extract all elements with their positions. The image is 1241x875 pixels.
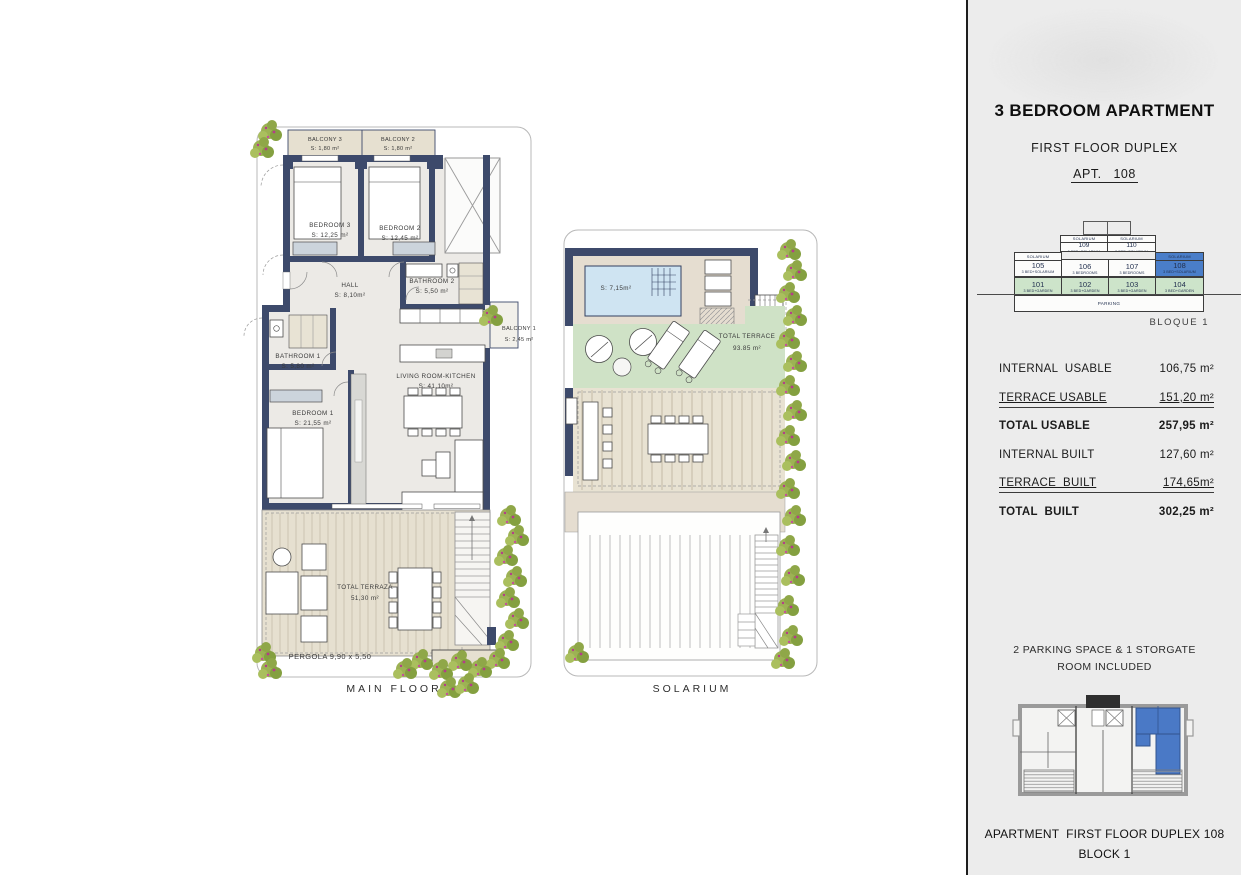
parking-note: 2 PARKING SPACE & 1 STORGATE ROOM INCLUD…: [968, 642, 1241, 676]
unit-cell-103: 103 3 BED+GARDEN: [1108, 277, 1156, 295]
area-row-terrace-usable: TERRACE USABLE 151,20 m²: [999, 392, 1214, 421]
pool: S: 7,15m²: [585, 266, 681, 316]
bedroom2-area: S: 12,45 m²: [382, 235, 419, 242]
roof-connector: [1083, 221, 1131, 235]
mini-building-plan: [1008, 690, 1198, 812]
bedroom1-area: S: 21,55 m²: [295, 420, 332, 427]
hall-area: S: 8,10m²: [335, 292, 366, 299]
terrace-label: TOTAL TERRAZA: [337, 584, 393, 591]
area-row-terrace-built: TERRACE BUILT 174,65m²: [999, 477, 1214, 506]
main-floor-caption: MAIN FLOOR: [346, 683, 441, 695]
main-floor-plan: BALCONY 3 S: 1,80 m² BALCONY 2 S: 1,80 m…: [244, 120, 536, 698]
solarium-pergola: PERGOLA 8,95 x 4,45: [565, 388, 785, 506]
bathroom1-area: S: 5,80 m²: [281, 363, 314, 370]
unit-cell-108-highlighted: SOLARIUM 108 3 BED+SOLARIUM: [1155, 252, 1204, 277]
balcony2-label: BALCONY 2: [381, 137, 415, 143]
page-title: 3 BEDROOM APARTMENT: [968, 101, 1241, 121]
watermark-logo: [986, 8, 1221, 103]
unit-cell-104: 104 3 BED+GARDEN: [1155, 277, 1204, 295]
page-subtitle: FIRST FLOOR DUPLEX: [968, 141, 1241, 155]
unit-cell-110: SOLARIUM 110 3 BED+SOLARIUM: [1107, 235, 1156, 252]
area-row-total-built: TOTAL BUILT 302,25 m²: [999, 506, 1214, 535]
parking-cell: PARKING: [1014, 295, 1204, 312]
bedroom3-area: S: 12,25 m²: [312, 232, 349, 239]
elevator-shaft: [445, 158, 500, 253]
balcony3-area: S: 1,80 m²: [311, 146, 340, 152]
solarium-strip: SOLARIUM: [1156, 253, 1203, 261]
unit-cell-109: SOLARIUM 109 3 BED+SOLARIUM: [1060, 235, 1108, 252]
bathroom2-area: S: 5,50 m²: [415, 288, 448, 295]
unit-cell-105: SOLARIUM 105 3 BED+SOLARIUM: [1014, 252, 1062, 277]
bedroom3-label: BEDROOM 3: [309, 222, 350, 229]
solarium-plan: S: 7,15m²: [564, 230, 817, 695]
bathroom1-label: BATHROOM 1: [275, 353, 320, 360]
balcony2-area: S: 1,80 m²: [384, 146, 413, 152]
terrace-area: 51,30 m²: [351, 595, 379, 602]
solarium-caption: SOLARIUM: [653, 683, 732, 695]
area-row-total-usable: TOTAL USABLE 257,95 m²: [999, 420, 1214, 449]
balcony1-area: S: 2,45 m²: [505, 337, 534, 343]
floor-plans-svg: BALCONY 3 S: 1,80 m² BALCONY 2 S: 1,80 m…: [0, 0, 966, 875]
bedroom3-furniture: [293, 167, 341, 255]
area-row-internal-built: INTERNAL BUILT 127,60 m²: [999, 449, 1214, 478]
bedroom1-label: BEDROOM 1: [292, 410, 333, 417]
pool-area-label: S: 7,15m²: [601, 285, 632, 292]
info-panel: 3 BEDROOM APARTMENT FIRST FLOOR DUPLEX A…: [966, 0, 1241, 875]
pergola-label: PERGOLA 9,90 x 5,50: [289, 652, 372, 661]
solarium-terrace-area: 93.85 m²: [733, 345, 761, 352]
balcony3-label: BALCONY 3: [308, 137, 342, 143]
apartment-number: APT. 108: [968, 167, 1241, 183]
solarium-strip: SOLARIUM: [1015, 253, 1061, 261]
hall-label: HALL: [341, 282, 358, 289]
living-area: S: 41,10m²: [419, 383, 454, 390]
panel-footer: APARTMENT FIRST FLOOR DUPLEX 108 BLOCK 1: [968, 824, 1241, 864]
floorplan-page: BALCONY 3 S: 1,80 m² BALCONY 2 S: 1,80 m…: [0, 0, 1241, 875]
unit-cell-102: 102 3 BED+GARDEN: [1061, 277, 1109, 295]
balcony1-label: BALCONY 1: [502, 326, 536, 332]
unit-cell-106: 106 3 BEDROOMS: [1061, 259, 1109, 277]
areas-table: INTERNAL USABLE 106,75 m² TERRACE USABLE…: [999, 363, 1214, 535]
bedroom2-label: BEDROOM 2: [379, 225, 420, 232]
unit-cell-101: 101 3 BED+GARDEN: [1014, 277, 1062, 295]
terrace-stairs: [455, 512, 490, 645]
solarium-terrace-label: TOTAL TERRACE: [719, 333, 775, 340]
balcony-2-3: BALCONY 3 S: 1,80 m² BALCONY 2 S: 1,80 m…: [288, 130, 435, 158]
bathroom2-label: BATHROOM 2: [409, 278, 454, 285]
building-stack-diagram: SOLARIUM 109 3 BED+SOLARIUM SOLARIUM 110…: [1014, 221, 1204, 336]
unit-cell-107: 107 3 BEDROOMS: [1108, 259, 1156, 277]
area-row-internal-usable: INTERNAL USABLE 106,75 m²: [999, 363, 1214, 392]
living-label: LIVING ROOM-KITCHEN: [396, 373, 475, 380]
solarium-lower-roof: [565, 492, 785, 660]
bloque-label: BLOQUE 1: [1112, 317, 1209, 328]
